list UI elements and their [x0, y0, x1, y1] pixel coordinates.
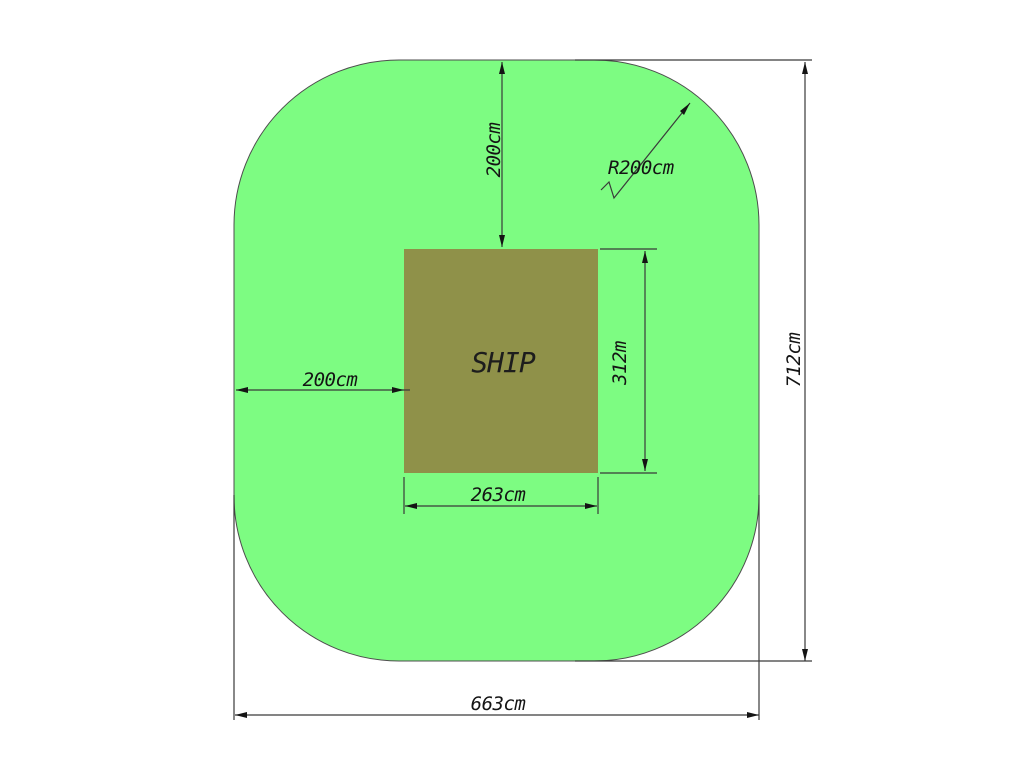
arrowhead-left-icon [235, 712, 247, 718]
corner-radius-label: R200cm [608, 157, 674, 179]
arrowhead-up-icon [802, 62, 808, 74]
safety-zone-diagram: SHIP 200cm R200cm 200cm 31 [0, 0, 1024, 768]
arrowhead-down-icon [802, 649, 808, 661]
overall-height-label: 712cm [783, 333, 805, 388]
top-offset-label: 200cm [483, 123, 505, 178]
ship-width-label: 263cm [471, 484, 526, 506]
overall-width-label: 663cm [471, 693, 526, 715]
left-offset-label: 200cm [303, 369, 358, 391]
ship-height-label: 312m [609, 341, 631, 386]
ship-label: SHIP [471, 346, 536, 379]
drawing-canvas: SHIP 200cm R200cm 200cm 31 [0, 0, 1024, 768]
arrowhead-right-icon [747, 712, 759, 718]
